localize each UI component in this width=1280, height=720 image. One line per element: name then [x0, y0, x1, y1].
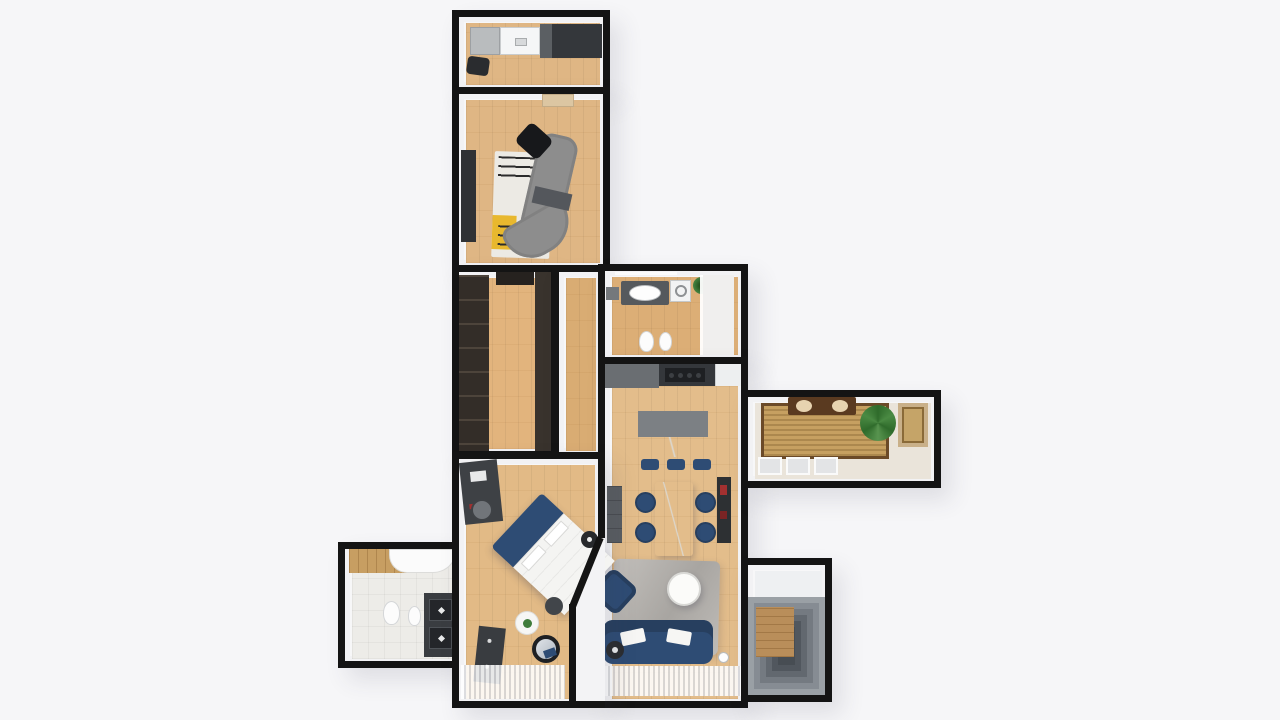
washer-drum	[675, 285, 687, 297]
dining-chair	[695, 492, 716, 513]
dining-chair	[695, 522, 716, 543]
sink-basin	[515, 38, 527, 46]
burner-icon	[678, 373, 683, 378]
vanity-sink-2	[429, 627, 452, 649]
side-table	[606, 641, 624, 659]
balcony-plant	[860, 405, 896, 441]
pouf	[545, 597, 563, 615]
ensuite-bidet	[408, 606, 421, 626]
kitchen-counter-mid	[659, 364, 715, 386]
dining-table	[655, 482, 693, 556]
kitchen-counter-right	[715, 364, 741, 386]
vanity-sink	[629, 285, 661, 301]
island-marble-counter	[638, 437, 708, 457]
tv-panel	[461, 150, 476, 242]
floor-plan-canvas	[0, 0, 1280, 720]
hallway-floor	[566, 278, 596, 451]
room-walk-in-closet	[452, 265, 558, 458]
faucet-icon	[438, 607, 445, 614]
washing-machine	[670, 280, 691, 302]
floor-window	[814, 457, 838, 475]
plant-icon	[523, 619, 532, 628]
burner-icon	[687, 373, 692, 378]
burner-icon	[669, 373, 674, 378]
floor-lamp	[718, 652, 729, 663]
bench-cushion	[796, 400, 812, 412]
stair-wood-panel	[756, 607, 794, 657]
toilet	[639, 331, 654, 352]
room-media-lounge	[452, 87, 610, 272]
room-bathroom-main	[598, 264, 748, 364]
floor-window	[758, 457, 782, 475]
dresser-knob	[487, 639, 491, 643]
island-top	[638, 411, 708, 437]
burner-icon	[696, 373, 701, 378]
room-ensuite-bathroom	[338, 542, 466, 668]
mirror-reflection	[543, 647, 557, 659]
coffee-table	[667, 572, 701, 606]
bar-stool	[641, 459, 659, 470]
balcony-bench	[788, 397, 856, 415]
nightstand-decor	[587, 537, 592, 542]
bar-stool	[667, 459, 685, 470]
kitchen-stool	[466, 56, 490, 77]
books-red	[720, 485, 727, 495]
bidet	[659, 332, 672, 351]
vanity	[621, 281, 669, 305]
vanity-sink-1	[429, 599, 452, 621]
fridge	[470, 27, 500, 55]
partition-wall	[569, 604, 576, 701]
laptop	[470, 470, 487, 482]
plant-stand	[515, 611, 539, 635]
closet-ceiling-panel	[496, 272, 534, 285]
room-staircase	[741, 558, 832, 702]
closet-shelving-unit	[459, 275, 489, 451]
floor-window	[786, 457, 810, 475]
living-sheer-curtain	[605, 666, 741, 696]
room-bedroom	[452, 452, 605, 708]
kitchen-sink-counter	[500, 27, 540, 55]
sofa-pillow	[666, 628, 692, 646]
towel-bar	[615, 272, 677, 275]
bookshelf	[717, 477, 731, 543]
bathroom-shelf	[606, 287, 619, 300]
books-red	[720, 511, 727, 519]
room-living-dining	[598, 357, 748, 708]
shower-area	[703, 275, 734, 355]
bar-stool	[693, 459, 711, 470]
desk-chair	[471, 499, 493, 521]
dining-chair	[635, 492, 656, 513]
room-kitchen-top	[452, 10, 610, 94]
cooktop	[665, 368, 705, 382]
room-balcony	[741, 390, 941, 488]
bench-cushion	[832, 400, 848, 412]
kitchen-dark-cabinets	[540, 24, 602, 58]
faucet-icon	[438, 635, 445, 642]
closet-wardrobe-panel	[535, 272, 551, 451]
sofa-pillow	[620, 628, 646, 647]
sideboard	[607, 486, 622, 543]
round-mirror	[532, 635, 560, 663]
bedroom-sheer-curtain	[461, 665, 565, 699]
stairs	[748, 597, 825, 695]
dining-chair	[635, 522, 656, 543]
kitchen-counter-left	[605, 364, 659, 388]
ensuite-toilet	[383, 601, 400, 625]
side-table-decor	[612, 647, 618, 653]
lounge-door	[542, 94, 574, 107]
balcony-framed-window	[898, 403, 928, 447]
